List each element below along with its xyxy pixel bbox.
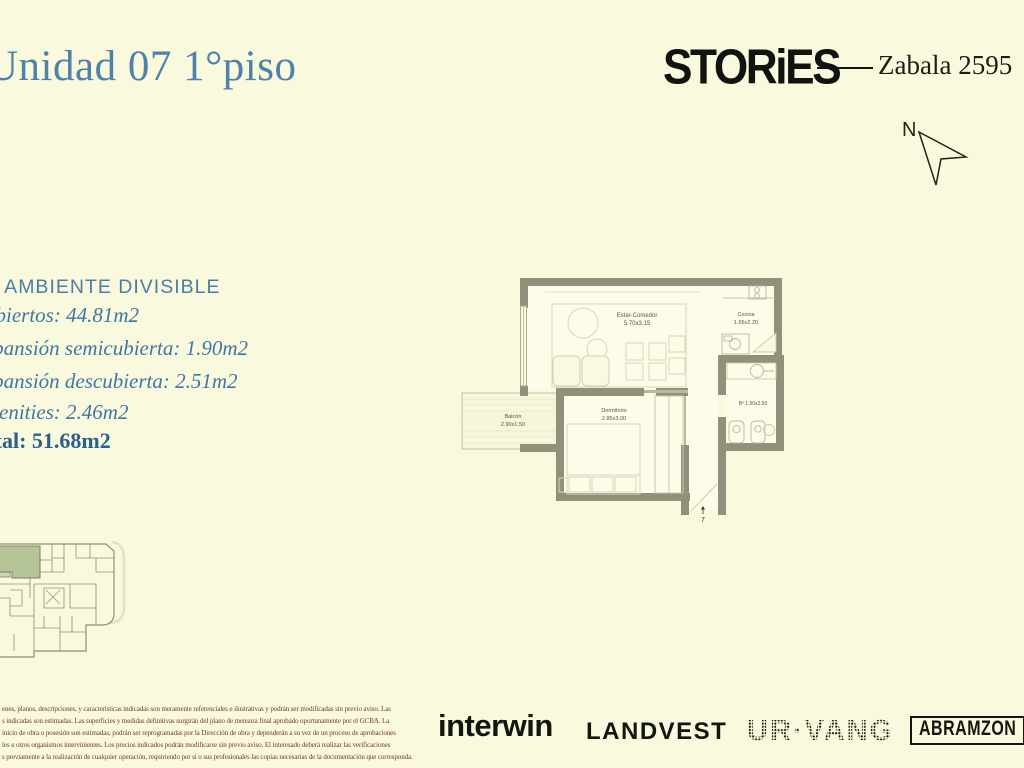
room-size-kitchen: 1.65x2.20 (734, 320, 758, 326)
north-arrow-icon: N (893, 110, 975, 198)
sliding-door (644, 390, 688, 393)
area-line-uncovered: Expansión descubierta: 2.51m2 (0, 369, 238, 394)
unit-type-heading: 1 AMBIENTE DIVISIBLE (0, 276, 221, 299)
logo-dash-divider (817, 67, 873, 69)
flyer-page: Unidad 07 1°piso STORiES Zabala 2595 N 1… (0, 0, 1024, 768)
room-size-living: 5.70x3.15 (624, 321, 651, 327)
room-size-bedroom: 2.85x3.00 (602, 416, 626, 422)
urvang-logo: UR·VANG (745, 706, 890, 752)
entry-unit-number: 7 (701, 517, 705, 524)
project-address: Zabala 2595 (878, 50, 1012, 81)
room-label-bathroom: Bº 1.50x2.50 (739, 401, 768, 407)
page-title: Unidad 07 1°piso (0, 42, 296, 91)
area-line-covered: Cubiertos: 44.81m2 (0, 303, 139, 328)
urvang-logo-text: UR·VANG (747, 715, 890, 747)
floor-plan: Estar-Comedor 5.70x3.15 Cocina 1.65x2.20… (450, 258, 800, 530)
room-label-living: Estar-Comedor (617, 313, 658, 319)
disclaimer-line: inicio de obra o posesión son estimadas,… (2, 727, 432, 739)
disclaimer-line: s previamente a la realización de cualqu… (2, 751, 432, 763)
abramzon-logo-text: ABRAMZON (919, 718, 1016, 741)
area-line-semicovered: Expansión semicubierta: 1.90m2 (0, 336, 248, 361)
interwin-logo: interwin (438, 708, 553, 744)
north-label: N (902, 119, 916, 141)
disclaimer-line: s indicadas son estimadas. Las superfici… (2, 715, 432, 727)
abramzon-logo: ABRAMZON (910, 716, 1024, 745)
room-label-bedroom: Dormitorio (601, 408, 626, 414)
balcony-area (462, 393, 562, 449)
key-plan (0, 528, 150, 690)
stories-logo: STORiES (663, 38, 839, 95)
room-label-balcony: Balcón (505, 414, 522, 420)
disclaimer-text: enes, planos, descripciones, y caracterí… (2, 703, 432, 763)
room-label-kitchen: Cocina (737, 312, 755, 318)
landvest-logo: LANDVEST (586, 718, 727, 746)
disclaimer-line: les u otros organismos intervinientes. L… (2, 739, 432, 751)
disclaimer-line: enes, planos, descripciones, y caracterí… (2, 703, 432, 715)
area-total: Total: 51.68m2 (0, 428, 111, 454)
room-size-balcony: 2.90x1.50 (501, 422, 525, 428)
area-line-amenities: Amenities: 2.46m2 (0, 400, 128, 425)
